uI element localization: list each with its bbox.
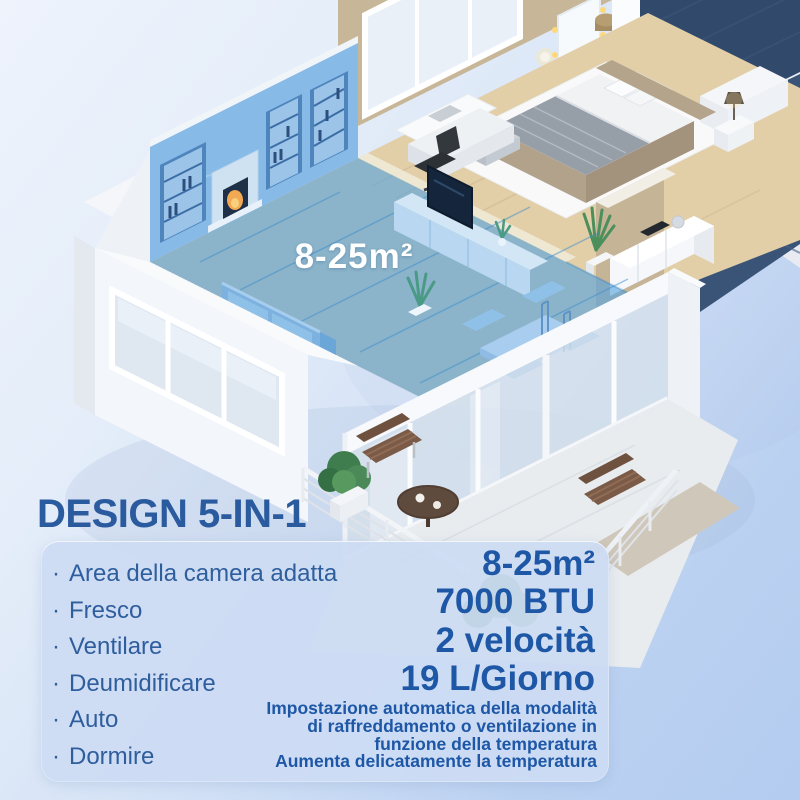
- feature-item: ·Ventilare: [52, 629, 337, 666]
- feature-item: ·Area della camera adatta: [52, 556, 337, 593]
- spec-line-speeds: 2 velocità: [401, 622, 595, 660]
- feature-label: Fresco: [69, 597, 142, 624]
- feature-label: Deumidificare: [69, 670, 216, 697]
- feature-item: ·Deumidificare: [52, 666, 337, 703]
- spec-line-btu: 7000 BTU: [401, 583, 595, 621]
- spec-lines: 8-25m² 7000 BTU 2 velocità 19 L/Giorno: [401, 545, 595, 699]
- feature-label: Area della camera adatta: [69, 560, 337, 587]
- feature-label: Dormire: [69, 743, 154, 770]
- spec-line-capacity: 19 L/Giorno: [401, 660, 595, 698]
- bullet-dot: ·: [52, 743, 60, 770]
- description: Impostazione automatica della modalità d…: [266, 700, 597, 771]
- headline: DESIGN 5-IN-1: [37, 492, 306, 537]
- bullet-dot: ·: [52, 633, 60, 660]
- bullet-dot: ·: [52, 670, 60, 697]
- description-line: Aumenta delicatamente la temperatura: [266, 753, 597, 771]
- feature-item: ·Fresco: [52, 593, 337, 630]
- bullet-dot: ·: [52, 560, 60, 587]
- bullet-dot: ·: [52, 706, 60, 733]
- feature-label: Ventilare: [69, 633, 162, 660]
- description-line: di raffreddamento o ventilazione in: [266, 718, 597, 736]
- spec-line-area: 8-25m²: [401, 545, 595, 583]
- marketing-image: 8-25m² DESIGN 5-IN-1 ·Area della camera …: [0, 0, 800, 800]
- feature-label: Auto: [69, 706, 118, 733]
- bullet-dot: ·: [52, 597, 60, 624]
- floor-area-badge: 8-25m²: [295, 237, 414, 277]
